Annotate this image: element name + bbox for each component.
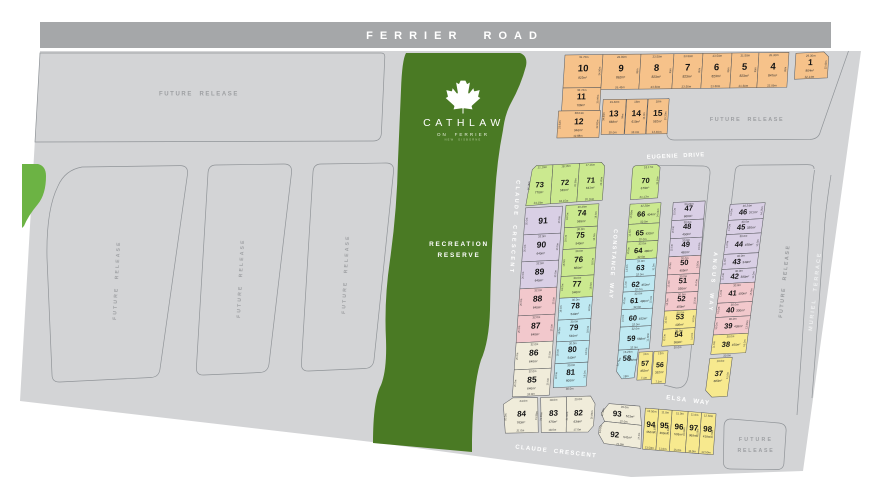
svg-text:668m²: 668m² xyxy=(609,120,618,124)
svg-text:9: 9 xyxy=(618,63,624,74)
svg-text:71: 71 xyxy=(586,176,596,185)
svg-text:26.30m: 26.30m xyxy=(769,53,779,57)
svg-text:15.0m: 15.0m xyxy=(692,297,697,304)
svg-text:1: 1 xyxy=(808,57,814,67)
svg-text:31.96m: 31.96m xyxy=(534,411,539,420)
svg-text:15.0m: 15.0m xyxy=(697,243,702,250)
svg-text:610m²: 610m² xyxy=(631,120,640,124)
svg-text:12: 12 xyxy=(574,116,584,126)
svg-text:29.30m: 29.30m xyxy=(806,54,816,58)
svg-text:30.0m: 30.0m xyxy=(675,328,684,332)
svg-text:31.59m: 31.59m xyxy=(711,430,715,439)
svg-text:20.0m: 20.0m xyxy=(513,380,517,387)
svg-text:46: 46 xyxy=(738,207,747,216)
svg-text:82: 82 xyxy=(574,408,584,417)
svg-text:22.42m: 22.42m xyxy=(823,61,828,70)
svg-text:21.19m: 21.19m xyxy=(538,165,548,169)
svg-text:75: 75 xyxy=(576,231,586,240)
svg-text:946m²: 946m² xyxy=(574,128,583,132)
svg-text:FUTURE: FUTURE xyxy=(739,437,773,443)
svg-text:30.29m: 30.29m xyxy=(578,205,588,209)
svg-text:18.0m: 18.0m xyxy=(548,428,557,432)
svg-text:568m²: 568m² xyxy=(637,337,646,341)
svg-text:20.0m: 20.0m xyxy=(545,378,549,385)
svg-text:24.0m: 24.0m xyxy=(519,399,528,403)
svg-text:683m²: 683m² xyxy=(713,379,722,383)
svg-text:78: 78 xyxy=(571,301,581,310)
svg-text:20.0m: 20.0m xyxy=(519,299,523,306)
svg-text:14.40m: 14.40m xyxy=(652,130,662,134)
svg-text:30.24m: 30.24m xyxy=(743,203,753,207)
svg-text:66: 66 xyxy=(637,209,646,218)
svg-text:458m²: 458m² xyxy=(745,242,754,246)
svg-text:26.89m: 26.89m xyxy=(589,410,594,419)
svg-text:11.48m: 11.48m xyxy=(645,333,650,342)
svg-text:65: 65 xyxy=(635,228,644,237)
svg-text:540m²: 540m² xyxy=(575,241,584,245)
svg-text:23.50m: 23.50m xyxy=(652,54,662,58)
svg-text:10: 10 xyxy=(578,63,589,74)
svg-text:25.28m: 25.28m xyxy=(526,181,531,190)
svg-text:15.0m: 15.0m xyxy=(672,208,677,215)
svg-text:86: 86 xyxy=(529,347,539,357)
svg-text:13: 13 xyxy=(609,108,619,118)
svg-text:823m²: 823m² xyxy=(739,74,748,78)
svg-text:480m²: 480m² xyxy=(644,249,653,253)
svg-text:30.0m: 30.0m xyxy=(577,227,586,231)
svg-text:32.14m: 32.14m xyxy=(805,75,815,79)
svg-text:NEW GISBORNE: NEW GISBORNE xyxy=(445,138,482,142)
svg-text:823m²: 823m² xyxy=(578,76,587,80)
svg-text:15.0m: 15.0m xyxy=(626,247,631,254)
svg-text:6: 6 xyxy=(714,62,720,73)
svg-text:30.0m: 30.0m xyxy=(737,254,746,258)
svg-text:14: 14 xyxy=(631,108,641,118)
svg-text:18.0m: 18.0m xyxy=(585,326,589,333)
svg-text:76: 76 xyxy=(574,255,584,264)
svg-text:540m²: 540m² xyxy=(567,355,576,359)
svg-text:29.0m: 29.0m xyxy=(621,405,630,410)
svg-text:763m²: 763m² xyxy=(517,420,526,424)
svg-text:18.0m: 18.0m xyxy=(563,235,567,242)
svg-text:32.0m: 32.0m xyxy=(538,234,547,238)
svg-text:30.0m: 30.0m xyxy=(681,256,690,260)
svg-text:330m²: 330m² xyxy=(736,308,745,312)
svg-text:15.0m: 15.0m xyxy=(666,280,671,287)
svg-text:FUTURE RELEASE: FUTURE RELEASE xyxy=(710,117,784,123)
svg-text:73: 73 xyxy=(535,180,544,189)
svg-text:632m²: 632m² xyxy=(629,358,638,362)
svg-text:17.0m: 17.0m xyxy=(573,427,582,431)
svg-text:23.50m: 23.50m xyxy=(711,84,721,88)
svg-text:89: 89 xyxy=(534,266,544,276)
svg-text:13.50m: 13.50m xyxy=(645,445,655,450)
svg-text:11.0m: 11.0m xyxy=(694,279,699,286)
svg-text:18m: 18m xyxy=(634,100,640,104)
svg-text:32.0m: 32.0m xyxy=(632,326,641,330)
svg-text:540m²: 540m² xyxy=(569,334,578,338)
svg-text:26.45m: 26.45m xyxy=(615,85,625,89)
svg-text:575m²: 575m² xyxy=(549,420,558,424)
svg-text:11.0m: 11.0m xyxy=(623,281,628,288)
svg-text:3.50m: 3.50m xyxy=(695,261,700,268)
svg-text:18.0m: 18.0m xyxy=(587,304,591,311)
svg-text:330m²: 330m² xyxy=(678,286,687,290)
svg-text:405m²: 405m² xyxy=(734,324,743,328)
svg-text:13m: 13m xyxy=(658,351,664,355)
svg-text:13.5m: 13.5m xyxy=(625,265,630,272)
svg-text:600m²: 600m² xyxy=(566,378,575,382)
svg-text:30.0m: 30.0m xyxy=(575,249,584,253)
svg-text:480m²: 480m² xyxy=(640,299,649,303)
svg-text:90: 90 xyxy=(536,239,546,249)
svg-text:18.0m: 18.0m xyxy=(557,327,561,334)
svg-text:18.0m: 18.0m xyxy=(593,211,597,218)
svg-text:45: 45 xyxy=(736,222,745,231)
svg-text:92: 92 xyxy=(610,430,620,440)
svg-text:640m²: 640m² xyxy=(527,386,536,390)
svg-text:21.0m: 21.0m xyxy=(616,442,625,447)
svg-text:640m²: 640m² xyxy=(535,278,544,282)
svg-text:57: 57 xyxy=(641,361,649,368)
svg-text:706m²: 706m² xyxy=(576,103,585,107)
svg-text:450m²: 450m² xyxy=(681,250,690,254)
svg-text:847m²: 847m² xyxy=(768,73,777,77)
svg-text:13.5m: 13.5m xyxy=(627,229,632,236)
svg-text:32.0m: 32.0m xyxy=(530,342,539,346)
svg-text:35m: 35m xyxy=(668,68,672,73)
svg-text:23.50m: 23.50m xyxy=(651,85,661,89)
svg-text:11.0m: 11.0m xyxy=(661,410,669,415)
svg-text:18.17m: 18.17m xyxy=(644,165,654,169)
svg-text:17.16m: 17.16m xyxy=(586,163,596,167)
svg-text:18.0m: 18.0m xyxy=(554,372,558,379)
svg-text:88: 88 xyxy=(533,293,543,303)
svg-text:18.15m: 18.15m xyxy=(561,164,571,168)
svg-text:18.15m: 18.15m xyxy=(559,199,569,203)
svg-text:91: 91 xyxy=(538,215,548,225)
svg-text:85: 85 xyxy=(527,374,537,384)
svg-text:38.04m: 38.04m xyxy=(575,111,585,115)
svg-text:31.70m: 31.70m xyxy=(579,55,589,59)
svg-text:30.0m: 30.0m xyxy=(723,353,732,357)
svg-text:20.0m: 20.0m xyxy=(555,243,559,250)
svg-text:18.0m: 18.0m xyxy=(565,213,569,220)
svg-text:20.0m: 20.0m xyxy=(557,216,561,223)
svg-text:32.0m: 32.0m xyxy=(532,315,541,319)
svg-text:83: 83 xyxy=(549,409,559,418)
svg-text:450m²: 450m² xyxy=(732,343,741,347)
svg-text:13.50m: 13.50m xyxy=(647,409,657,414)
svg-text:680m²: 680m² xyxy=(574,266,583,270)
svg-text:18.0m: 18.0m xyxy=(631,130,640,134)
svg-text:450m²: 450m² xyxy=(738,291,747,295)
svg-text:20.0m: 20.0m xyxy=(553,270,557,277)
svg-text:19.0m: 19.0m xyxy=(716,359,725,363)
svg-text:369m²: 369m² xyxy=(674,340,683,344)
svg-text:32.0m: 32.0m xyxy=(633,305,642,309)
svg-text:20.0m: 20.0m xyxy=(574,397,583,401)
svg-text:503m²: 503m² xyxy=(674,432,683,437)
svg-text:30.0m: 30.0m xyxy=(679,274,688,278)
svg-text:30.0m: 30.0m xyxy=(566,386,575,390)
svg-text:24.19m: 24.19m xyxy=(534,200,544,204)
svg-text:18.0m: 18.0m xyxy=(588,282,592,289)
svg-text:12.50m: 12.50m xyxy=(701,450,711,455)
svg-text:18.0m: 18.0m xyxy=(590,258,594,265)
svg-text:21.17m: 21.17m xyxy=(639,195,649,199)
svg-text:15.0m: 15.0m xyxy=(665,298,670,305)
svg-text:18.0m: 18.0m xyxy=(560,284,564,291)
svg-text:15.0m: 15.0m xyxy=(662,334,667,341)
svg-text:15: 15 xyxy=(653,108,663,118)
svg-text:70: 70 xyxy=(641,176,650,185)
svg-text:23.50m: 23.50m xyxy=(683,54,693,58)
svg-text:31.59m: 31.59m xyxy=(667,426,671,435)
svg-text:22.62m: 22.62m xyxy=(595,120,600,129)
svg-text:30.5m: 30.5m xyxy=(678,292,687,296)
svg-text:804m²: 804m² xyxy=(805,68,814,72)
svg-text:23.50m: 23.50m xyxy=(682,84,692,88)
svg-text:640m²: 640m² xyxy=(536,251,545,255)
svg-text:405m²: 405m² xyxy=(679,268,688,272)
svg-text:35m: 35m xyxy=(753,67,757,72)
svg-text:30.0m: 30.0m xyxy=(726,334,735,338)
svg-text:371m²: 371m² xyxy=(749,210,758,214)
svg-text:405m²: 405m² xyxy=(675,323,684,327)
svg-text:11.0m: 11.0m xyxy=(691,412,699,417)
svg-text:30.0m: 30.0m xyxy=(735,269,744,273)
svg-text:634m²: 634m² xyxy=(573,419,582,423)
svg-text:42.88m: 42.88m xyxy=(573,134,583,138)
svg-text:31.92m: 31.92m xyxy=(565,412,570,421)
svg-text:35m: 35m xyxy=(783,67,787,72)
svg-text:30.0m: 30.0m xyxy=(684,220,693,224)
svg-text:37: 37 xyxy=(714,369,723,378)
svg-text:32.72m: 32.72m xyxy=(577,88,587,92)
svg-text:14.0m: 14.0m xyxy=(642,112,646,119)
svg-text:20.99m: 20.99m xyxy=(595,95,600,104)
svg-text:20.0m: 20.0m xyxy=(520,272,524,279)
svg-text:87: 87 xyxy=(531,320,541,330)
svg-text:823m²: 823m² xyxy=(651,75,660,79)
svg-text:63: 63 xyxy=(636,263,645,272)
svg-text:15.0m: 15.0m xyxy=(669,244,674,251)
svg-text:640m²: 640m² xyxy=(533,305,542,309)
svg-text:641m²: 641m² xyxy=(586,186,595,190)
svg-text:330m²: 330m² xyxy=(740,275,749,279)
svg-text:565m²: 565m² xyxy=(577,219,586,223)
svg-text:43: 43 xyxy=(732,257,741,266)
svg-text:23.62m: 23.62m xyxy=(557,120,562,129)
svg-text:77: 77 xyxy=(572,279,582,288)
svg-text:15.0m: 15.0m xyxy=(648,296,653,303)
svg-text:540m²: 540m² xyxy=(570,312,579,316)
svg-text:93: 93 xyxy=(612,409,622,419)
svg-text:20.16m: 20.16m xyxy=(585,197,595,201)
svg-text:15.0m: 15.0m xyxy=(621,315,626,322)
svg-text:16.26m: 16.26m xyxy=(623,350,633,354)
svg-text:21.50m: 21.50m xyxy=(739,84,749,88)
svg-text:352m²: 352m² xyxy=(640,369,649,373)
svg-text:15.0m: 15.0m xyxy=(622,297,627,304)
svg-text:38: 38 xyxy=(721,340,730,349)
svg-text:30.0m: 30.0m xyxy=(682,238,691,242)
svg-text:56: 56 xyxy=(656,362,664,369)
svg-text:59: 59 xyxy=(627,334,636,343)
svg-text:19.48m: 19.48m xyxy=(610,100,620,104)
svg-text:35m: 35m xyxy=(697,68,701,73)
svg-text:34m: 34m xyxy=(620,114,624,119)
svg-text:30.0m: 30.0m xyxy=(567,363,576,367)
svg-text:18m: 18m xyxy=(623,374,629,378)
svg-text:31.59m: 31.59m xyxy=(696,429,700,438)
svg-text:20.0m: 20.0m xyxy=(524,218,528,225)
svg-text:18.0m: 18.0m xyxy=(562,259,566,266)
svg-text:404m²: 404m² xyxy=(647,212,656,216)
svg-text:21.0m: 21.0m xyxy=(516,428,525,432)
svg-text:540m²: 540m² xyxy=(572,290,581,294)
svg-text:15.0m: 15.0m xyxy=(676,411,685,416)
svg-text:FERRIER ROAD: FERRIER ROAD xyxy=(366,30,544,42)
svg-text:30.0m: 30.0m xyxy=(674,345,683,349)
svg-text:11: 11 xyxy=(577,91,587,101)
svg-text:24.96m: 24.96m xyxy=(597,67,602,76)
svg-text:30.0m: 30.0m xyxy=(572,297,581,301)
svg-text:34.85m: 34.85m xyxy=(601,112,606,121)
svg-text:18.0m: 18.0m xyxy=(558,305,562,312)
svg-text:15.0m: 15.0m xyxy=(673,448,682,453)
svg-text:80: 80 xyxy=(568,345,578,354)
svg-text:31.0m: 31.0m xyxy=(637,259,646,263)
svg-text:18.0m: 18.0m xyxy=(549,398,558,402)
svg-text:30.0m: 30.0m xyxy=(739,234,748,238)
svg-text:32.36m: 32.36m xyxy=(573,178,578,187)
svg-text:823m²: 823m² xyxy=(711,74,720,78)
svg-text:673m²: 673m² xyxy=(641,186,650,190)
svg-text:600m²: 600m² xyxy=(684,214,693,218)
svg-text:640m²: 640m² xyxy=(529,359,538,363)
svg-text:581m²: 581m² xyxy=(560,188,569,192)
svg-text:20.0m: 20.0m xyxy=(515,353,519,360)
svg-text:42: 42 xyxy=(730,272,739,281)
svg-text:15.0m: 15.0m xyxy=(671,226,676,233)
svg-text:22.09m: 22.09m xyxy=(767,83,777,87)
svg-text:15.0m: 15.0m xyxy=(668,262,673,269)
svg-text:81: 81 xyxy=(566,368,576,377)
svg-text:11.0m: 11.0m xyxy=(688,449,696,454)
svg-text:12.50m: 12.50m xyxy=(704,413,714,418)
svg-text:30.0m: 30.0m xyxy=(569,341,578,345)
svg-text:74: 74 xyxy=(577,208,587,217)
svg-text:20.0m: 20.0m xyxy=(549,324,553,331)
svg-text:32.0m: 32.0m xyxy=(534,288,543,292)
svg-text:35m: 35m xyxy=(635,69,639,74)
svg-text:20.0m: 20.0m xyxy=(503,413,507,420)
svg-text:592m²: 592m² xyxy=(653,119,662,123)
svg-text:32.28m: 32.28m xyxy=(641,203,651,207)
svg-text:20.0m: 20.0m xyxy=(551,297,555,304)
svg-text:32.0m: 32.0m xyxy=(536,261,545,265)
svg-text:32.0m: 32.0m xyxy=(527,392,536,396)
svg-text:18.0m: 18.0m xyxy=(555,349,559,356)
svg-text:32.0m: 32.0m xyxy=(638,241,647,245)
svg-text:10.58m: 10.58m xyxy=(629,210,634,219)
svg-text:32.0m: 32.0m xyxy=(529,369,538,373)
svg-text:31.96m: 31.96m xyxy=(539,412,544,421)
svg-text:11.0m: 11.0m xyxy=(690,333,695,340)
svg-text:770m²: 770m² xyxy=(535,190,544,194)
svg-text:352m²: 352m² xyxy=(655,370,664,374)
svg-text:30.24m: 30.24m xyxy=(684,202,694,206)
svg-text:23.50m: 23.50m xyxy=(712,54,722,58)
svg-text:18.0m: 18.0m xyxy=(582,370,586,377)
svg-text:823m²: 823m² xyxy=(682,74,691,78)
svg-text:30.0m: 30.0m xyxy=(573,276,582,280)
svg-text:18.0m: 18.0m xyxy=(592,233,596,240)
svg-text:31.59m: 31.59m xyxy=(683,428,687,437)
svg-text:CATHLAW: CATHLAW xyxy=(423,117,505,129)
svg-text:7: 7 xyxy=(685,62,691,73)
svg-text:541m²: 541m² xyxy=(623,435,632,440)
svg-text:640m²: 640m² xyxy=(531,332,540,336)
svg-text:ON FERRIER: ON FERRIER xyxy=(437,132,489,137)
svg-text:7.1m: 7.1m xyxy=(641,376,648,380)
svg-text:11.5m: 11.5m xyxy=(651,263,656,270)
svg-text:8: 8 xyxy=(654,63,660,74)
svg-text:35m: 35m xyxy=(726,67,730,72)
svg-text:20.0m: 20.0m xyxy=(547,351,551,358)
svg-text:RESERVE: RESERVE xyxy=(437,252,480,259)
svg-text:84: 84 xyxy=(517,409,527,418)
svg-text:30.0m: 30.0m xyxy=(729,317,738,321)
svg-text:20.0m: 20.0m xyxy=(517,326,521,333)
svg-text:18.0m: 18.0m xyxy=(584,348,588,355)
svg-text:30.0m: 30.0m xyxy=(733,283,742,287)
svg-text:450m²: 450m² xyxy=(676,304,685,308)
svg-text:79: 79 xyxy=(569,323,579,332)
svg-text:30.0m: 30.0m xyxy=(741,219,750,223)
svg-text:30.0m: 30.0m xyxy=(676,310,685,314)
svg-text:29.26m: 29.26m xyxy=(599,177,604,186)
svg-text:41: 41 xyxy=(728,288,737,297)
svg-text:FUTURE RELEASE: FUTURE RELEASE xyxy=(159,92,239,98)
svg-text:13.5m: 13.5m xyxy=(691,315,696,322)
svg-text:15.0m: 15.0m xyxy=(663,316,668,323)
svg-text:32.0m: 32.0m xyxy=(636,272,645,276)
svg-text:29.20m: 29.20m xyxy=(663,111,668,120)
svg-text:32.0m: 32.0m xyxy=(640,219,649,223)
svg-text:30.0m: 30.0m xyxy=(730,302,739,306)
svg-text:21.50m: 21.50m xyxy=(740,53,750,57)
svg-text:7.1m: 7.1m xyxy=(655,379,662,383)
svg-text:39: 39 xyxy=(724,321,733,330)
svg-text:14.64m: 14.64m xyxy=(655,208,660,217)
svg-text:30.0m: 30.0m xyxy=(570,319,579,323)
svg-text:72: 72 xyxy=(560,178,569,187)
svg-text:20.0m: 20.0m xyxy=(609,130,618,134)
svg-text:18m: 18m xyxy=(656,99,662,103)
svg-text:862m²: 862m² xyxy=(616,75,625,79)
svg-text:RECREATION: RECREATION xyxy=(429,241,489,248)
svg-text:32.0m: 32.0m xyxy=(634,291,643,295)
svg-text:20.0m: 20.0m xyxy=(522,245,526,252)
svg-text:523m²: 523m² xyxy=(626,414,635,419)
svg-text:452m²: 452m² xyxy=(639,316,648,320)
svg-text:450m²: 450m² xyxy=(682,232,691,236)
svg-text:RELEASE: RELEASE xyxy=(737,448,774,454)
svg-text:22.80m: 22.80m xyxy=(617,55,627,59)
